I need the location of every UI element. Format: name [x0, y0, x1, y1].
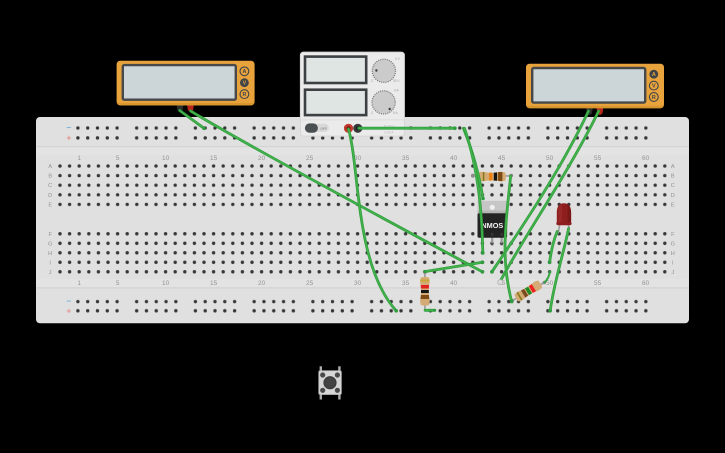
svg-text:V: V [652, 84, 656, 90]
svg-text:10: 10 [162, 280, 170, 287]
svg-text:15: 15 [210, 280, 218, 287]
svg-text:5.00 A: 5.00 A [384, 131, 394, 135]
svg-text:30 V: 30 V [393, 79, 400, 83]
svg-text:30: 30 [354, 280, 362, 287]
svg-text:10: 10 [162, 155, 170, 162]
svg-text:20: 20 [258, 155, 266, 162]
svg-text:NMOS: NMOS [481, 221, 503, 230]
svg-text:J: J [49, 270, 52, 276]
svg-text:25: 25 [306, 280, 314, 287]
svg-text:A: A [671, 164, 675, 170]
svg-text:55: 55 [594, 155, 602, 162]
svg-text:15: 15 [210, 155, 218, 162]
svg-text:D: D [491, 233, 494, 237]
svg-text:J: J [671, 270, 674, 276]
svg-text:E: E [671, 202, 675, 208]
svg-text:D: D [48, 193, 52, 199]
svg-text:5: 5 [116, 155, 120, 162]
svg-text:1: 1 [77, 155, 81, 162]
svg-text:H: H [671, 251, 675, 257]
svg-text:G: G [48, 241, 52, 247]
svg-text:60: 60 [642, 280, 650, 287]
svg-text:E: E [48, 202, 52, 208]
svg-text:V: V [243, 81, 247, 87]
svg-text:R: R [652, 95, 656, 101]
svg-text:60: 60 [642, 155, 650, 162]
svg-text:35: 35 [402, 280, 410, 287]
svg-text:1: 1 [77, 280, 81, 287]
svg-text:+: + [66, 306, 71, 316]
svg-text:A: A [652, 72, 656, 78]
svg-text:D: D [671, 193, 675, 199]
svg-text:40: 40 [450, 280, 458, 287]
svg-text:40: 40 [450, 155, 458, 162]
svg-text:C: C [671, 183, 675, 189]
svg-text:F: F [48, 232, 52, 238]
svg-text:C: C [48, 183, 52, 189]
svg-text:B: B [48, 174, 52, 180]
svg-text:R: R [242, 92, 246, 98]
svg-text:H: H [48, 251, 52, 257]
svg-text:B: B [671, 174, 675, 180]
svg-text:OFF: OFF [320, 127, 326, 131]
svg-text:G: G [671, 241, 675, 247]
svg-text:−: − [66, 123, 71, 133]
svg-text:A: A [48, 164, 52, 170]
svg-text:25: 25 [306, 155, 314, 162]
svg-text:55: 55 [594, 280, 602, 287]
svg-text:20: 20 [258, 280, 266, 287]
svg-text:35: 35 [402, 155, 410, 162]
svg-text:F: F [671, 232, 675, 238]
svg-text:50: 50 [546, 155, 554, 162]
svg-text:45: 45 [498, 155, 506, 162]
svg-text:A: A [242, 69, 246, 75]
svg-text:5: 5 [116, 280, 120, 287]
svg-text:+: + [66, 133, 71, 143]
